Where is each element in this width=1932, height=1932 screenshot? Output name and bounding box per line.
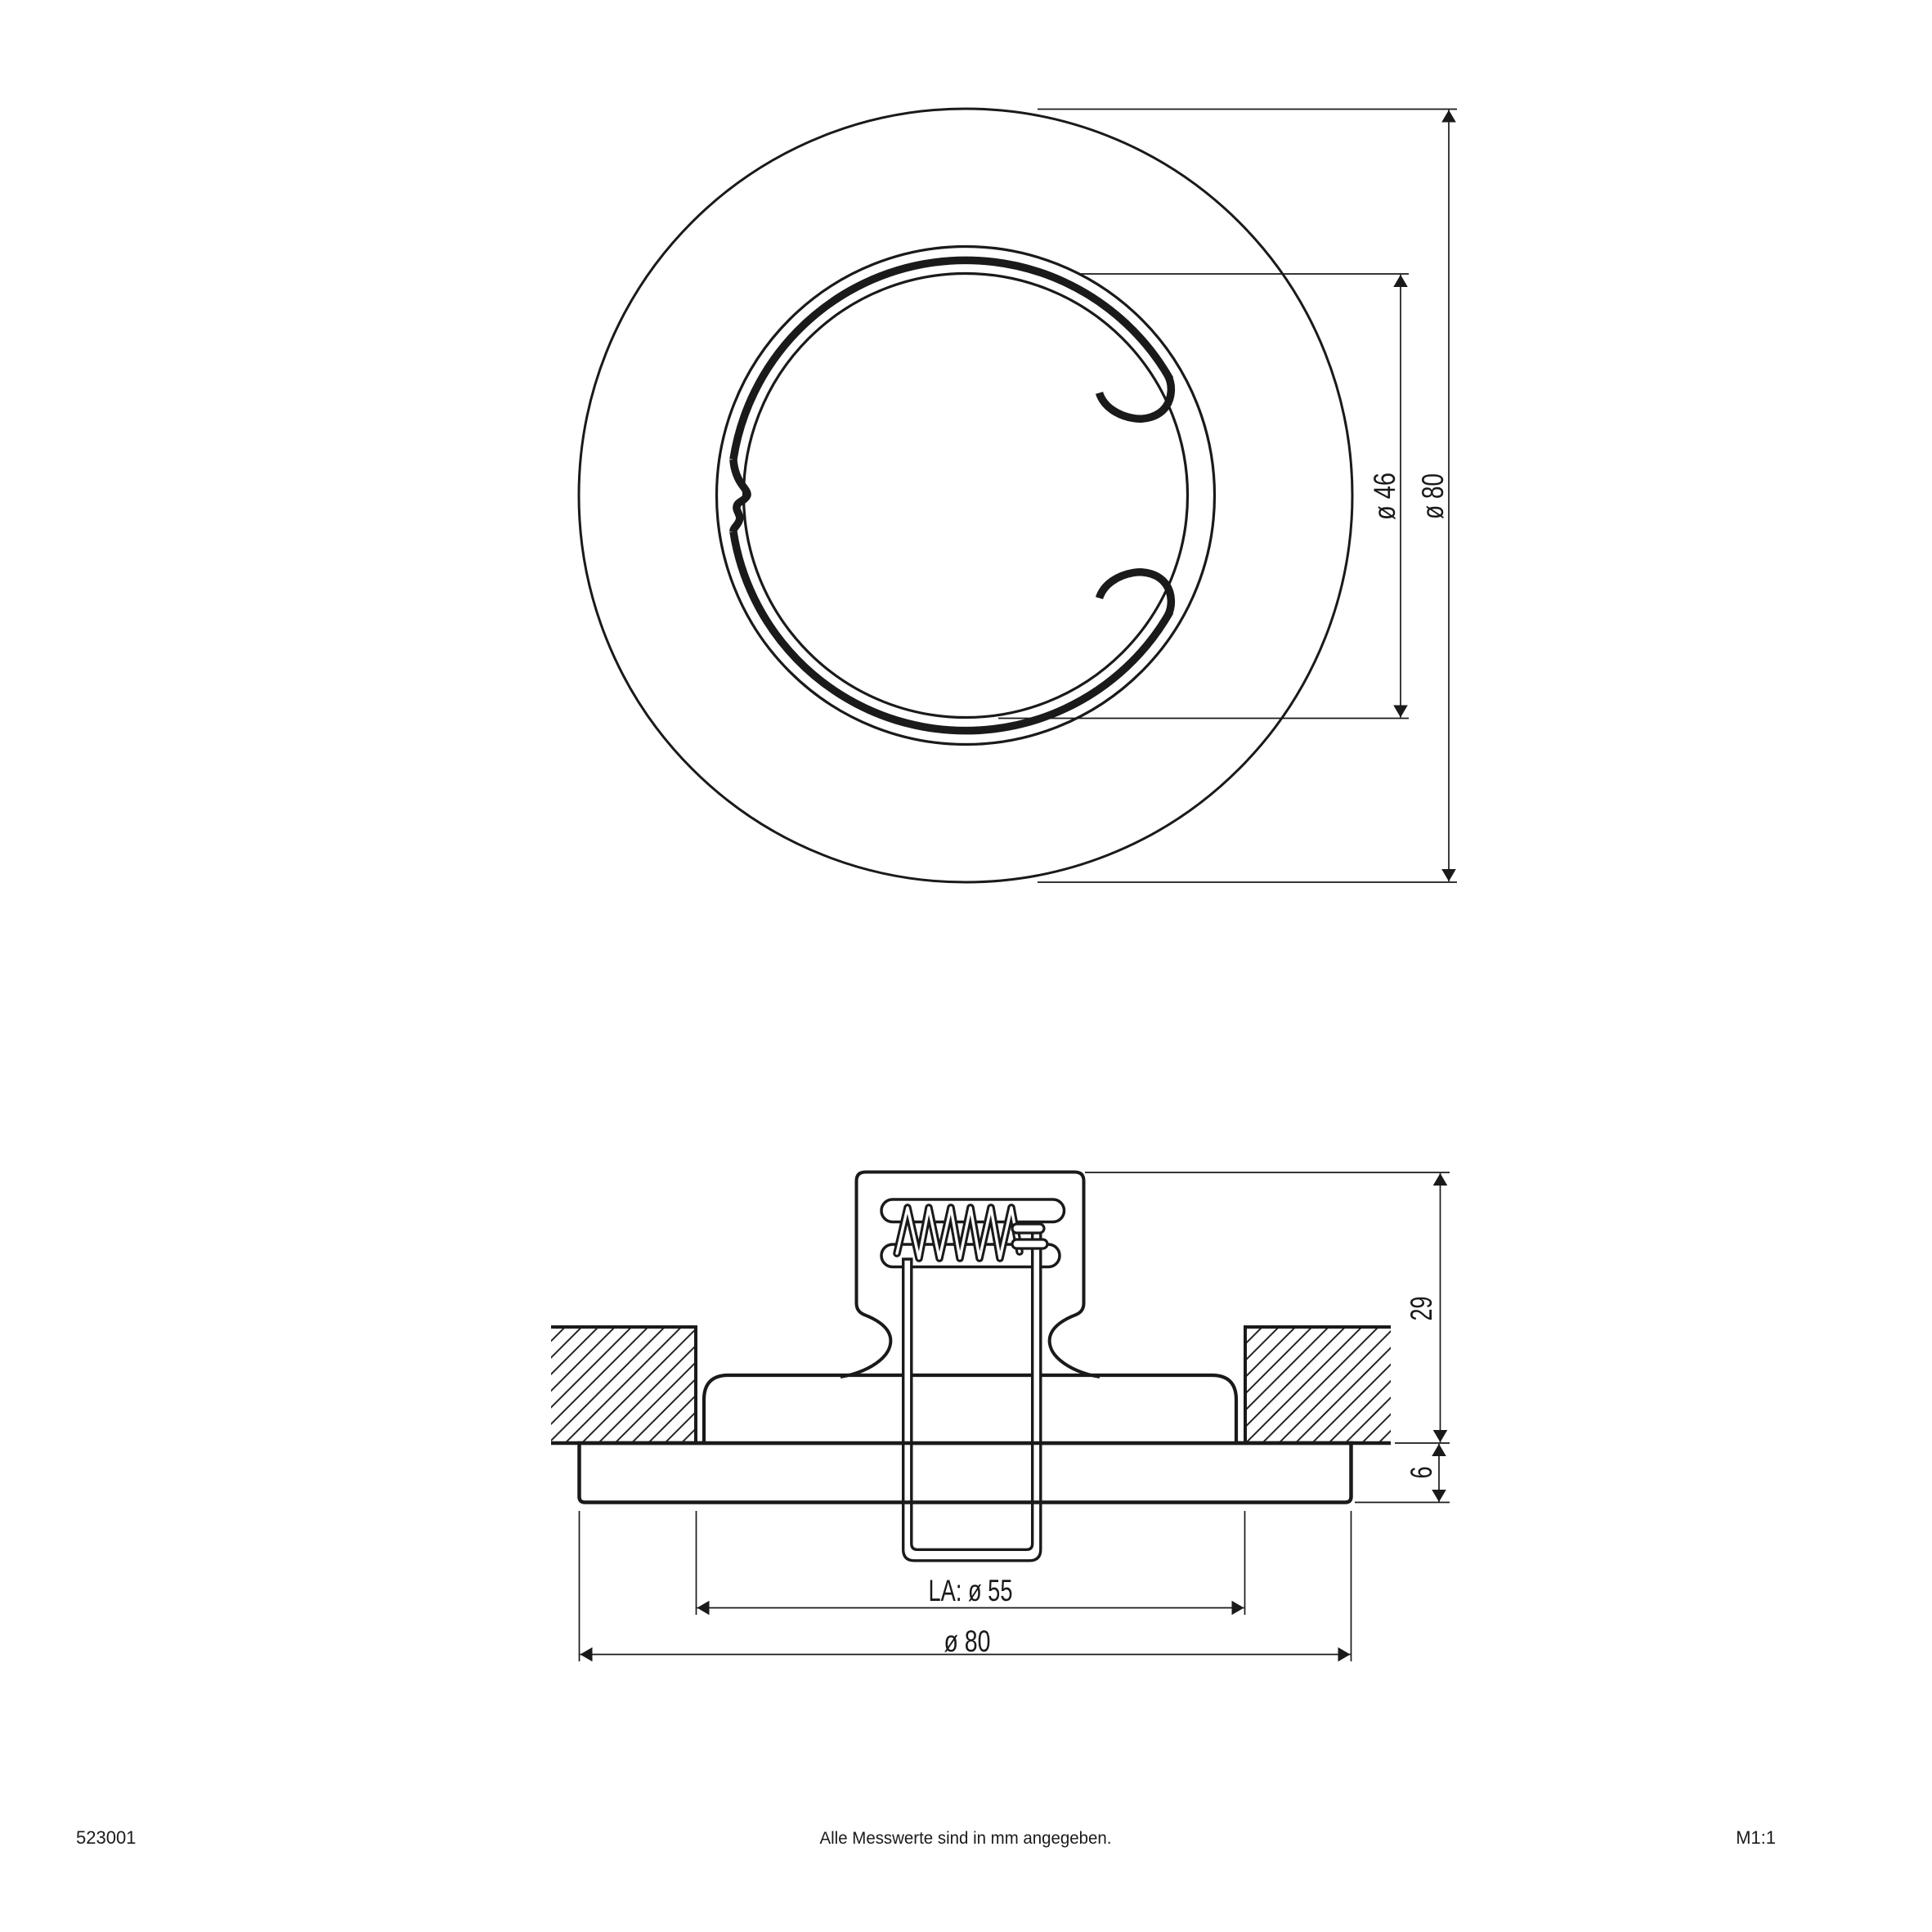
svg-text:ø 80: ø 80: [944, 1625, 991, 1658]
svg-text:Alle Messwerte sind in mm ange: Alle Messwerte sind in mm angegeben.: [820, 1828, 1112, 1848]
svg-text:LA: ø 55: LA: ø 55: [929, 1574, 1013, 1607]
svg-text:ø 46: ø 46: [1368, 473, 1401, 520]
svg-text:M1:1: M1:1: [1736, 1827, 1776, 1848]
svg-text:6: 6: [1405, 1467, 1438, 1479]
svg-text:29: 29: [1405, 1297, 1438, 1321]
svg-text:ø 80: ø 80: [1416, 473, 1450, 519]
svg-text:523001: 523001: [76, 1827, 136, 1848]
